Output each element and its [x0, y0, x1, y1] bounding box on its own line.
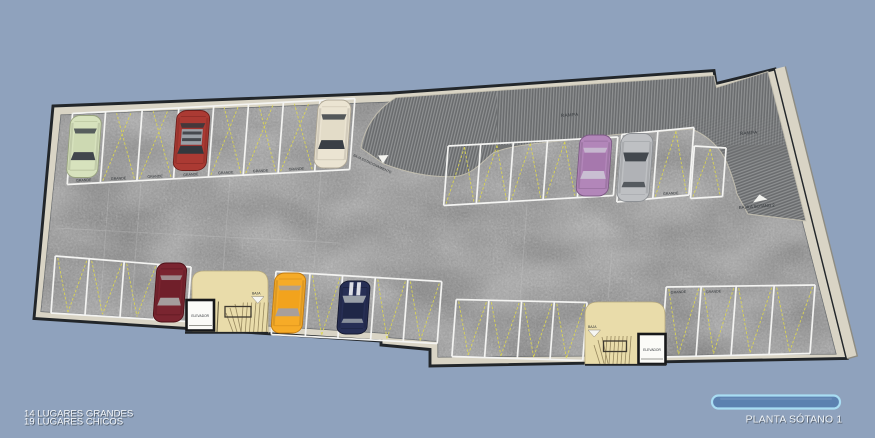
svg-text:ELEVADOR: ELEVADOR	[643, 348, 661, 352]
svg-text:GRANDE: GRANDE	[671, 290, 687, 295]
svg-text:GRANDE: GRANDE	[253, 169, 269, 174]
svg-text:GRANDE: GRANDE	[111, 176, 127, 181]
svg-text:GRANDE: GRANDE	[289, 167, 305, 172]
svg-text:GRANDE: GRANDE	[147, 174, 163, 179]
svg-text:GRANDE: GRANDE	[663, 191, 679, 196]
svg-text:GRANDE: GRANDE	[218, 170, 234, 175]
svg-text:GRANDE: GRANDE	[706, 289, 722, 294]
svg-text:ELEVADOR: ELEVADOR	[191, 314, 209, 318]
svg-text:PLANTA SÓTANO 1: PLANTA SÓTANO 1	[746, 413, 843, 426]
svg-text:BAJA: BAJA	[252, 292, 261, 296]
svg-text:GRANDE: GRANDE	[76, 178, 92, 183]
svg-text:GRANDE: GRANDE	[183, 172, 199, 177]
svg-text:19 LUGARES CHICOS: 19 LUGARES CHICOS	[24, 417, 123, 428]
svg-text:BAJA: BAJA	[588, 325, 597, 329]
